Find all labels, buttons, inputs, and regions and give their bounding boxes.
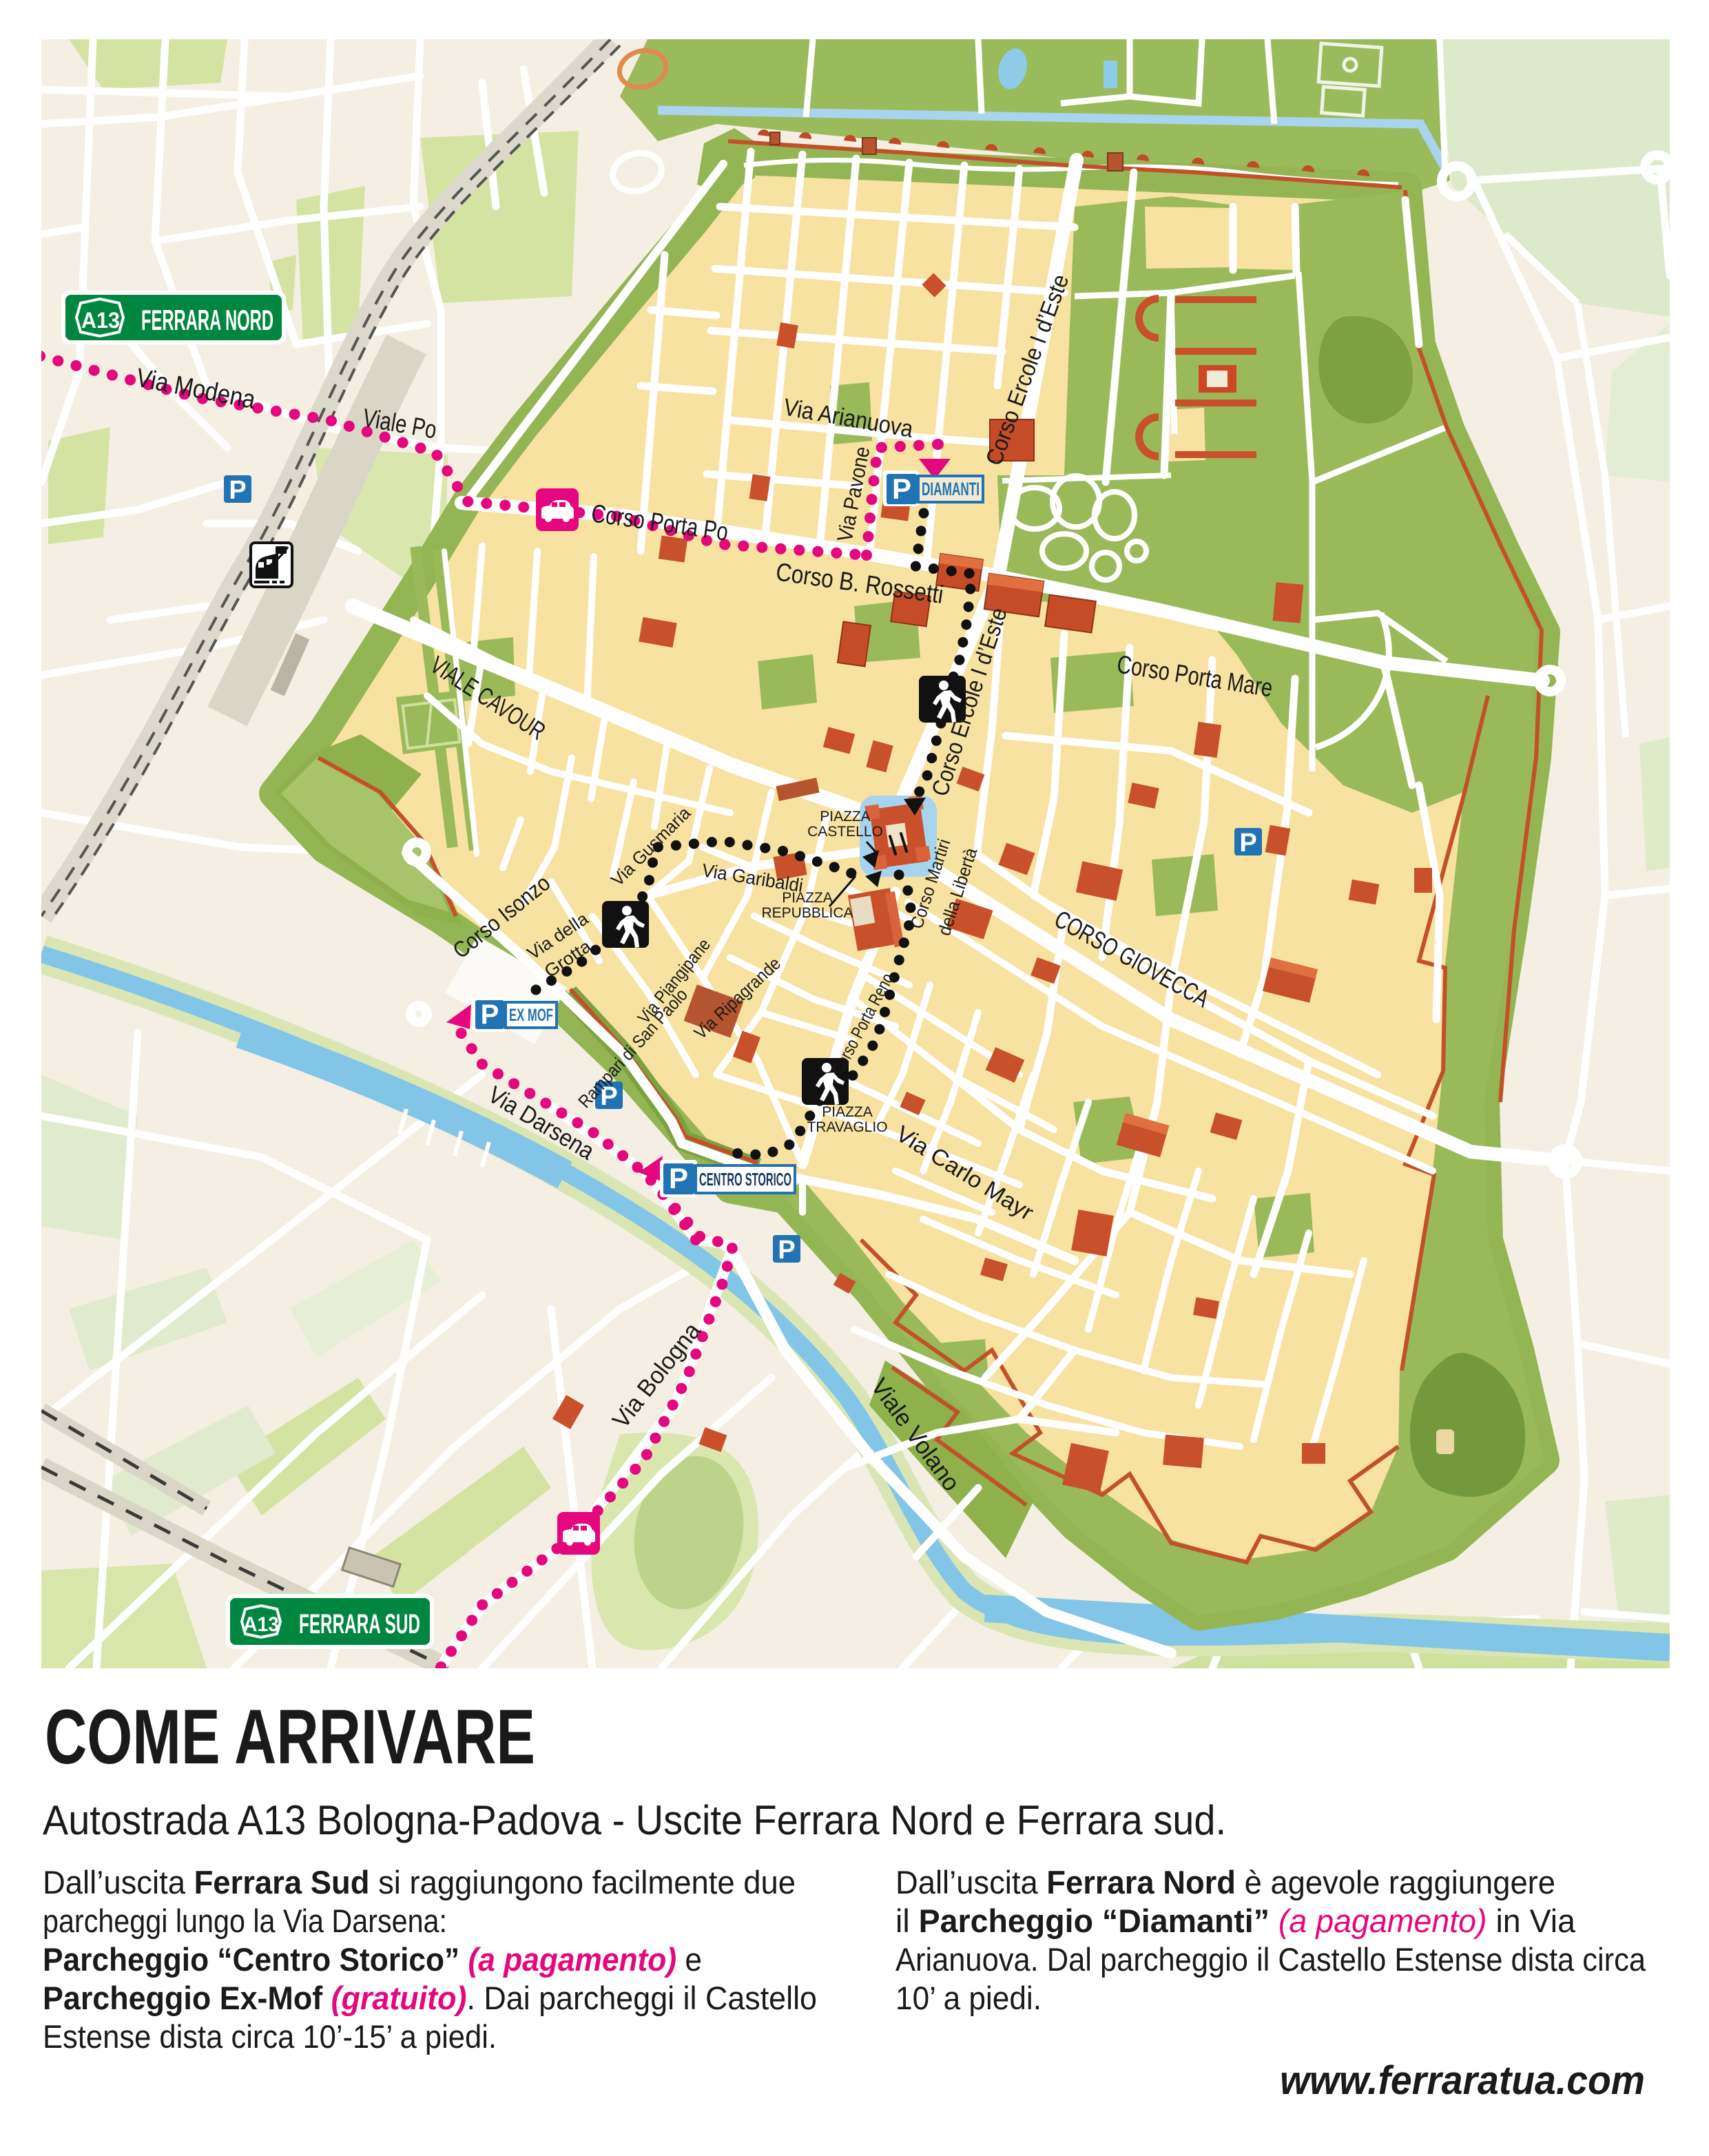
svg-text:Dall’uscita Ferrara Sud si rag: Dall’uscita Ferrara Sud si raggiungono f… — [43, 1864, 796, 1900]
svg-text:Parcheggio Ex-Mof (gratuito).: Parcheggio Ex-Mof (gratuito). Dai parche… — [43, 1980, 817, 2016]
svg-text:P: P — [481, 999, 499, 1030]
svg-text:P: P — [0, 0, 9, 16]
svg-text:CASTELLO: CASTELLO — [807, 824, 883, 840]
svg-text:parcheggi lungo la Via Darsena: parcheggi lungo la Via Darsena: — [43, 1903, 447, 1939]
svg-text:COME ARRIVARE: COME ARRIVARE — [45, 1694, 535, 1780]
svg-text:A13: A13 — [243, 1613, 279, 1636]
svg-text:10’ a piedi.: 10’ a piedi. — [895, 1980, 1042, 2016]
svg-text:Autostrada A13 Bologna-Padova: Autostrada A13 Bologna-Padova - Uscite F… — [43, 1797, 1226, 1843]
svg-text:P: P — [669, 1162, 688, 1194]
svg-text:EX MOF: EX MOF — [509, 1006, 553, 1025]
svg-text:Arianuova. Dal parcheggio il C: Arianuova. Dal parcheggio il Castello Es… — [895, 1941, 1646, 1978]
svg-text:FERRARA SUD: FERRARA SUD — [299, 1609, 420, 1639]
svg-text:il Parcheggio “Diamanti” (a pa: il Parcheggio “Diamanti” (a pagamento) i… — [895, 1903, 1576, 1939]
svg-text:DIAMANTI: DIAMANTI — [922, 479, 980, 499]
svg-text:CENTRO STORICO: CENTRO STORICO — [699, 1169, 791, 1190]
svg-text:PIAZZA: PIAZZA — [822, 1104, 873, 1120]
svg-text:FERRARA NORD: FERRARA NORD — [141, 304, 273, 336]
svg-text:TRAVAGLIO: TRAVAGLIO — [807, 1119, 887, 1135]
svg-text:Dall’uscita Ferrara Nord è age: Dall’uscita Ferrara Nord è agevole raggi… — [895, 1864, 1555, 1900]
svg-text:REPUBBLICA: REPUBBLICA — [761, 905, 853, 921]
svg-text:A13: A13 — [81, 308, 120, 333]
svg-text:PIAZZA: PIAZZA — [782, 890, 833, 906]
svg-text:www.ferraratua.com: www.ferraratua.com — [1280, 2058, 1645, 2103]
svg-text:Parcheggio “Centro Storico” (a: Parcheggio “Centro Storico” (a pagamento… — [43, 1941, 702, 1978]
svg-text:Estense dista circa 10’-15’ a: Estense dista circa 10’-15’ a piedi. — [43, 2018, 497, 2055]
svg-text:PIAZZA: PIAZZA — [820, 809, 871, 825]
svg-text:P: P — [892, 473, 911, 505]
